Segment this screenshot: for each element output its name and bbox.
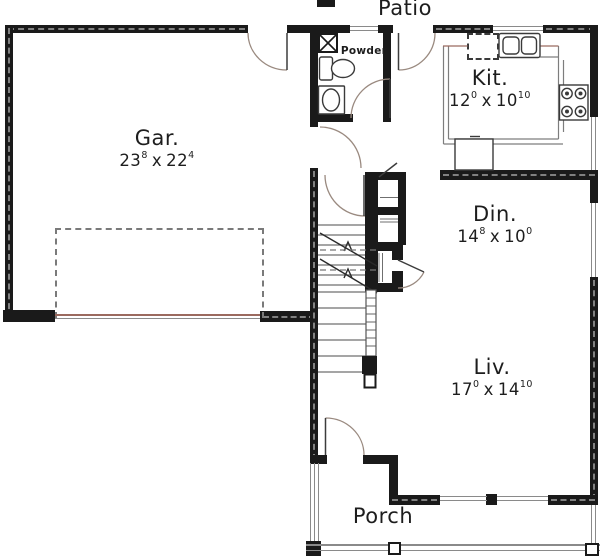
wall-top-post xyxy=(378,25,393,33)
window-living-right xyxy=(591,203,592,277)
range xyxy=(560,85,589,120)
room-dimensions: 238x224 xyxy=(87,151,227,170)
stair-treads-upper xyxy=(318,225,365,285)
window-living-right xyxy=(595,203,596,277)
room-name: Liv. xyxy=(432,355,552,379)
garage-door-line xyxy=(55,314,260,316)
wall-closet1-bottom xyxy=(378,207,406,215)
porch-label: Porch xyxy=(323,504,443,528)
powder-label: Powder xyxy=(338,45,390,57)
garage-door-line xyxy=(55,318,260,319)
kitchen-sink xyxy=(499,34,540,58)
room-name: Din. xyxy=(435,202,555,226)
wall-kitchen-top-a xyxy=(433,25,493,33)
porch-edge-bottom xyxy=(306,544,600,546)
wall-right-a xyxy=(590,25,598,117)
room-dimensions: 170x1410 xyxy=(432,380,552,399)
wall-closet2-right xyxy=(398,215,406,245)
patio-kitchen-door-arc xyxy=(399,33,436,70)
wall-right-c xyxy=(590,277,598,503)
porch-edge-left xyxy=(314,463,315,541)
refrigerator xyxy=(455,137,493,171)
window-living-front-a xyxy=(440,496,487,497)
porch-post-middle xyxy=(388,542,401,555)
wall-stairwell-center xyxy=(365,172,378,290)
wall-pantry-bottom xyxy=(365,283,403,292)
wall-powder-bottom xyxy=(310,114,353,122)
porch-edge-left xyxy=(318,463,319,541)
room-dimensions: 148x100 xyxy=(435,227,555,246)
patio-edge-stub xyxy=(317,0,335,7)
wall-left-lower xyxy=(310,168,318,463)
patio-label: Patio xyxy=(345,0,465,20)
dishwasher xyxy=(467,33,499,60)
utility-chase-box xyxy=(318,33,338,53)
wall-garage-top-right xyxy=(287,25,310,33)
room-label-kitchen: Kit. 120x1010 xyxy=(430,66,550,110)
window-powder xyxy=(350,30,378,31)
wall-garage-top-left xyxy=(5,25,248,33)
wall-garage-left xyxy=(5,25,13,322)
window-kitchen-sink xyxy=(493,26,543,27)
door-swings xyxy=(248,33,435,455)
wall-left-upper xyxy=(310,33,318,127)
room-dimensions: 120x1010 xyxy=(430,91,550,110)
stair-railing xyxy=(362,290,377,388)
room-label-dining: Din. 148x100 xyxy=(435,202,555,246)
window-living-front-a xyxy=(440,500,487,501)
garage-entry-door-arc xyxy=(320,127,361,168)
room-name: Kit. xyxy=(430,66,550,90)
stair-post-base xyxy=(365,375,376,388)
window-kitchen-sink xyxy=(493,30,543,31)
pedestal-sink xyxy=(319,86,345,114)
wall-garage-bottom-left xyxy=(3,310,55,322)
stair-newel-post xyxy=(362,356,377,374)
porch-edge-right xyxy=(595,505,596,544)
window-powder xyxy=(350,26,378,27)
wall-powder-top xyxy=(310,25,350,33)
stair-door-arc xyxy=(325,175,365,216)
garage-door-track-dashed xyxy=(55,228,264,318)
front-door-arc xyxy=(326,418,365,455)
porch-edge-left xyxy=(310,463,311,541)
wall-kitchen-dining xyxy=(440,170,598,180)
wall-front-window-post xyxy=(486,494,497,505)
wall-front-bottom-right xyxy=(548,495,598,505)
window-living-front-b xyxy=(497,496,548,497)
window-dining-right xyxy=(591,117,592,170)
room-label-garage: Gar. 238x224 xyxy=(87,126,227,170)
garage-patio-door-arc xyxy=(248,33,287,70)
toilet xyxy=(320,57,355,80)
window-dining-right xyxy=(595,117,596,170)
porch-post-right xyxy=(585,543,599,556)
porch-edge-right xyxy=(591,505,592,544)
floor-plan: Patio Powder Porch Gar. 238x224 Kit. 120… xyxy=(0,0,600,559)
room-name: Gar. xyxy=(87,126,227,150)
room-label-living: Liv. 170x1410 xyxy=(432,355,552,399)
stair-treads-lower xyxy=(318,292,376,372)
porch-edge-bottom xyxy=(306,550,600,551)
window-living-front-b xyxy=(497,500,548,501)
wall-pantry-jamb-top xyxy=(392,242,403,260)
